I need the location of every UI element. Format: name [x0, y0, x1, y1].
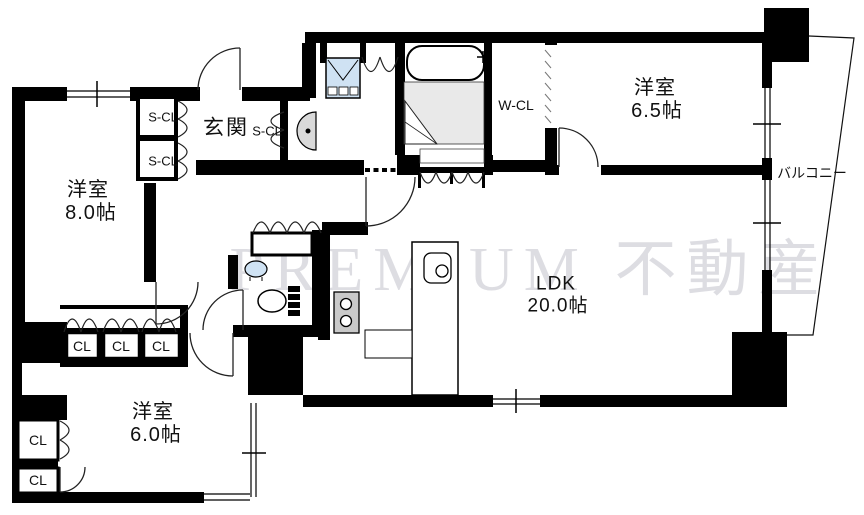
window-room65-right [753, 88, 781, 158]
label-western-room-6-size: 6.0帖 [130, 425, 182, 445]
kitchen-fixtures [334, 242, 458, 395]
label-closet-col-2: CL [29, 473, 47, 487]
label-western-room-65-name: 洋室 [634, 78, 676, 98]
washbasin-icon [297, 112, 316, 150]
ldk-door-icon [366, 177, 415, 226]
label-shoe-closet-1: S-CL [148, 111, 178, 124]
room8-door-icon [156, 282, 198, 324]
toilet-icon [258, 286, 300, 316]
closet-col-2-door-icon [60, 467, 85, 492]
shoe-closet-2-bifold-icon [178, 143, 187, 179]
washing-machine-icon [326, 58, 360, 98]
kitchen-sink-icon [424, 253, 451, 283]
label-closet-row-3: CL [152, 339, 170, 353]
floor-plan: PREMIUM 不動産 [0, 0, 864, 515]
closet-row-bifold-icon [64, 319, 176, 332]
bathroom-fixtures [404, 46, 489, 163]
window-room6-right [242, 403, 266, 497]
closet-col-1-bifold-icon [60, 421, 69, 459]
toilet-closet-bifold-icon [253, 222, 321, 233]
pillar-bottom-right [732, 332, 787, 403]
label-closet-col-1: CL [29, 433, 47, 447]
toilet-door-icon [203, 290, 243, 330]
room65-door-icon [559, 128, 598, 167]
label-ldk-name: LDK [536, 275, 576, 294]
stove-icon [334, 292, 359, 333]
label-closet-row-2: CL [112, 339, 130, 353]
entrance-door-icon [198, 48, 240, 90]
balcony-outline [787, 36, 854, 335]
label-walk-in-closet: W-CL [498, 98, 534, 112]
window-ldk-right [753, 180, 781, 270]
toilet-fixtures [245, 261, 300, 316]
room6-door-icon [190, 333, 233, 376]
window-room8-top [67, 81, 130, 107]
wcl-opening-hatch-icon [545, 50, 551, 123]
label-western-room-8-size: 8.0帖 [65, 203, 117, 223]
kitchen-counter [365, 330, 412, 358]
label-balcony: バルコニー [777, 166, 847, 180]
label-entrance: 玄関 [203, 118, 249, 139]
laundry-closet-bifold-icon [362, 57, 398, 72]
label-shoe-closet-3: S-CL [252, 125, 282, 138]
label-western-room-8-name: 洋室 [67, 180, 109, 200]
label-western-room-6-name: 洋室 [132, 402, 174, 422]
window-room6-bottom [204, 494, 250, 500]
label-ldk-size: 20.0帖 [528, 297, 589, 316]
toilet-closet-box [252, 233, 312, 255]
washroom-slider-icon [365, 168, 396, 172]
bathtub-icon [407, 46, 484, 80]
label-closet-row-1: CL [73, 339, 91, 353]
window-ldk-bottom [493, 389, 540, 413]
bath-counter [420, 149, 484, 163]
label-western-room-65-size: 6.5帖 [631, 101, 683, 121]
label-shoe-closet-2: S-CL [148, 155, 178, 168]
shoe-closet-1-bifold-icon [178, 101, 187, 137]
hand-basin-icon [245, 261, 267, 281]
